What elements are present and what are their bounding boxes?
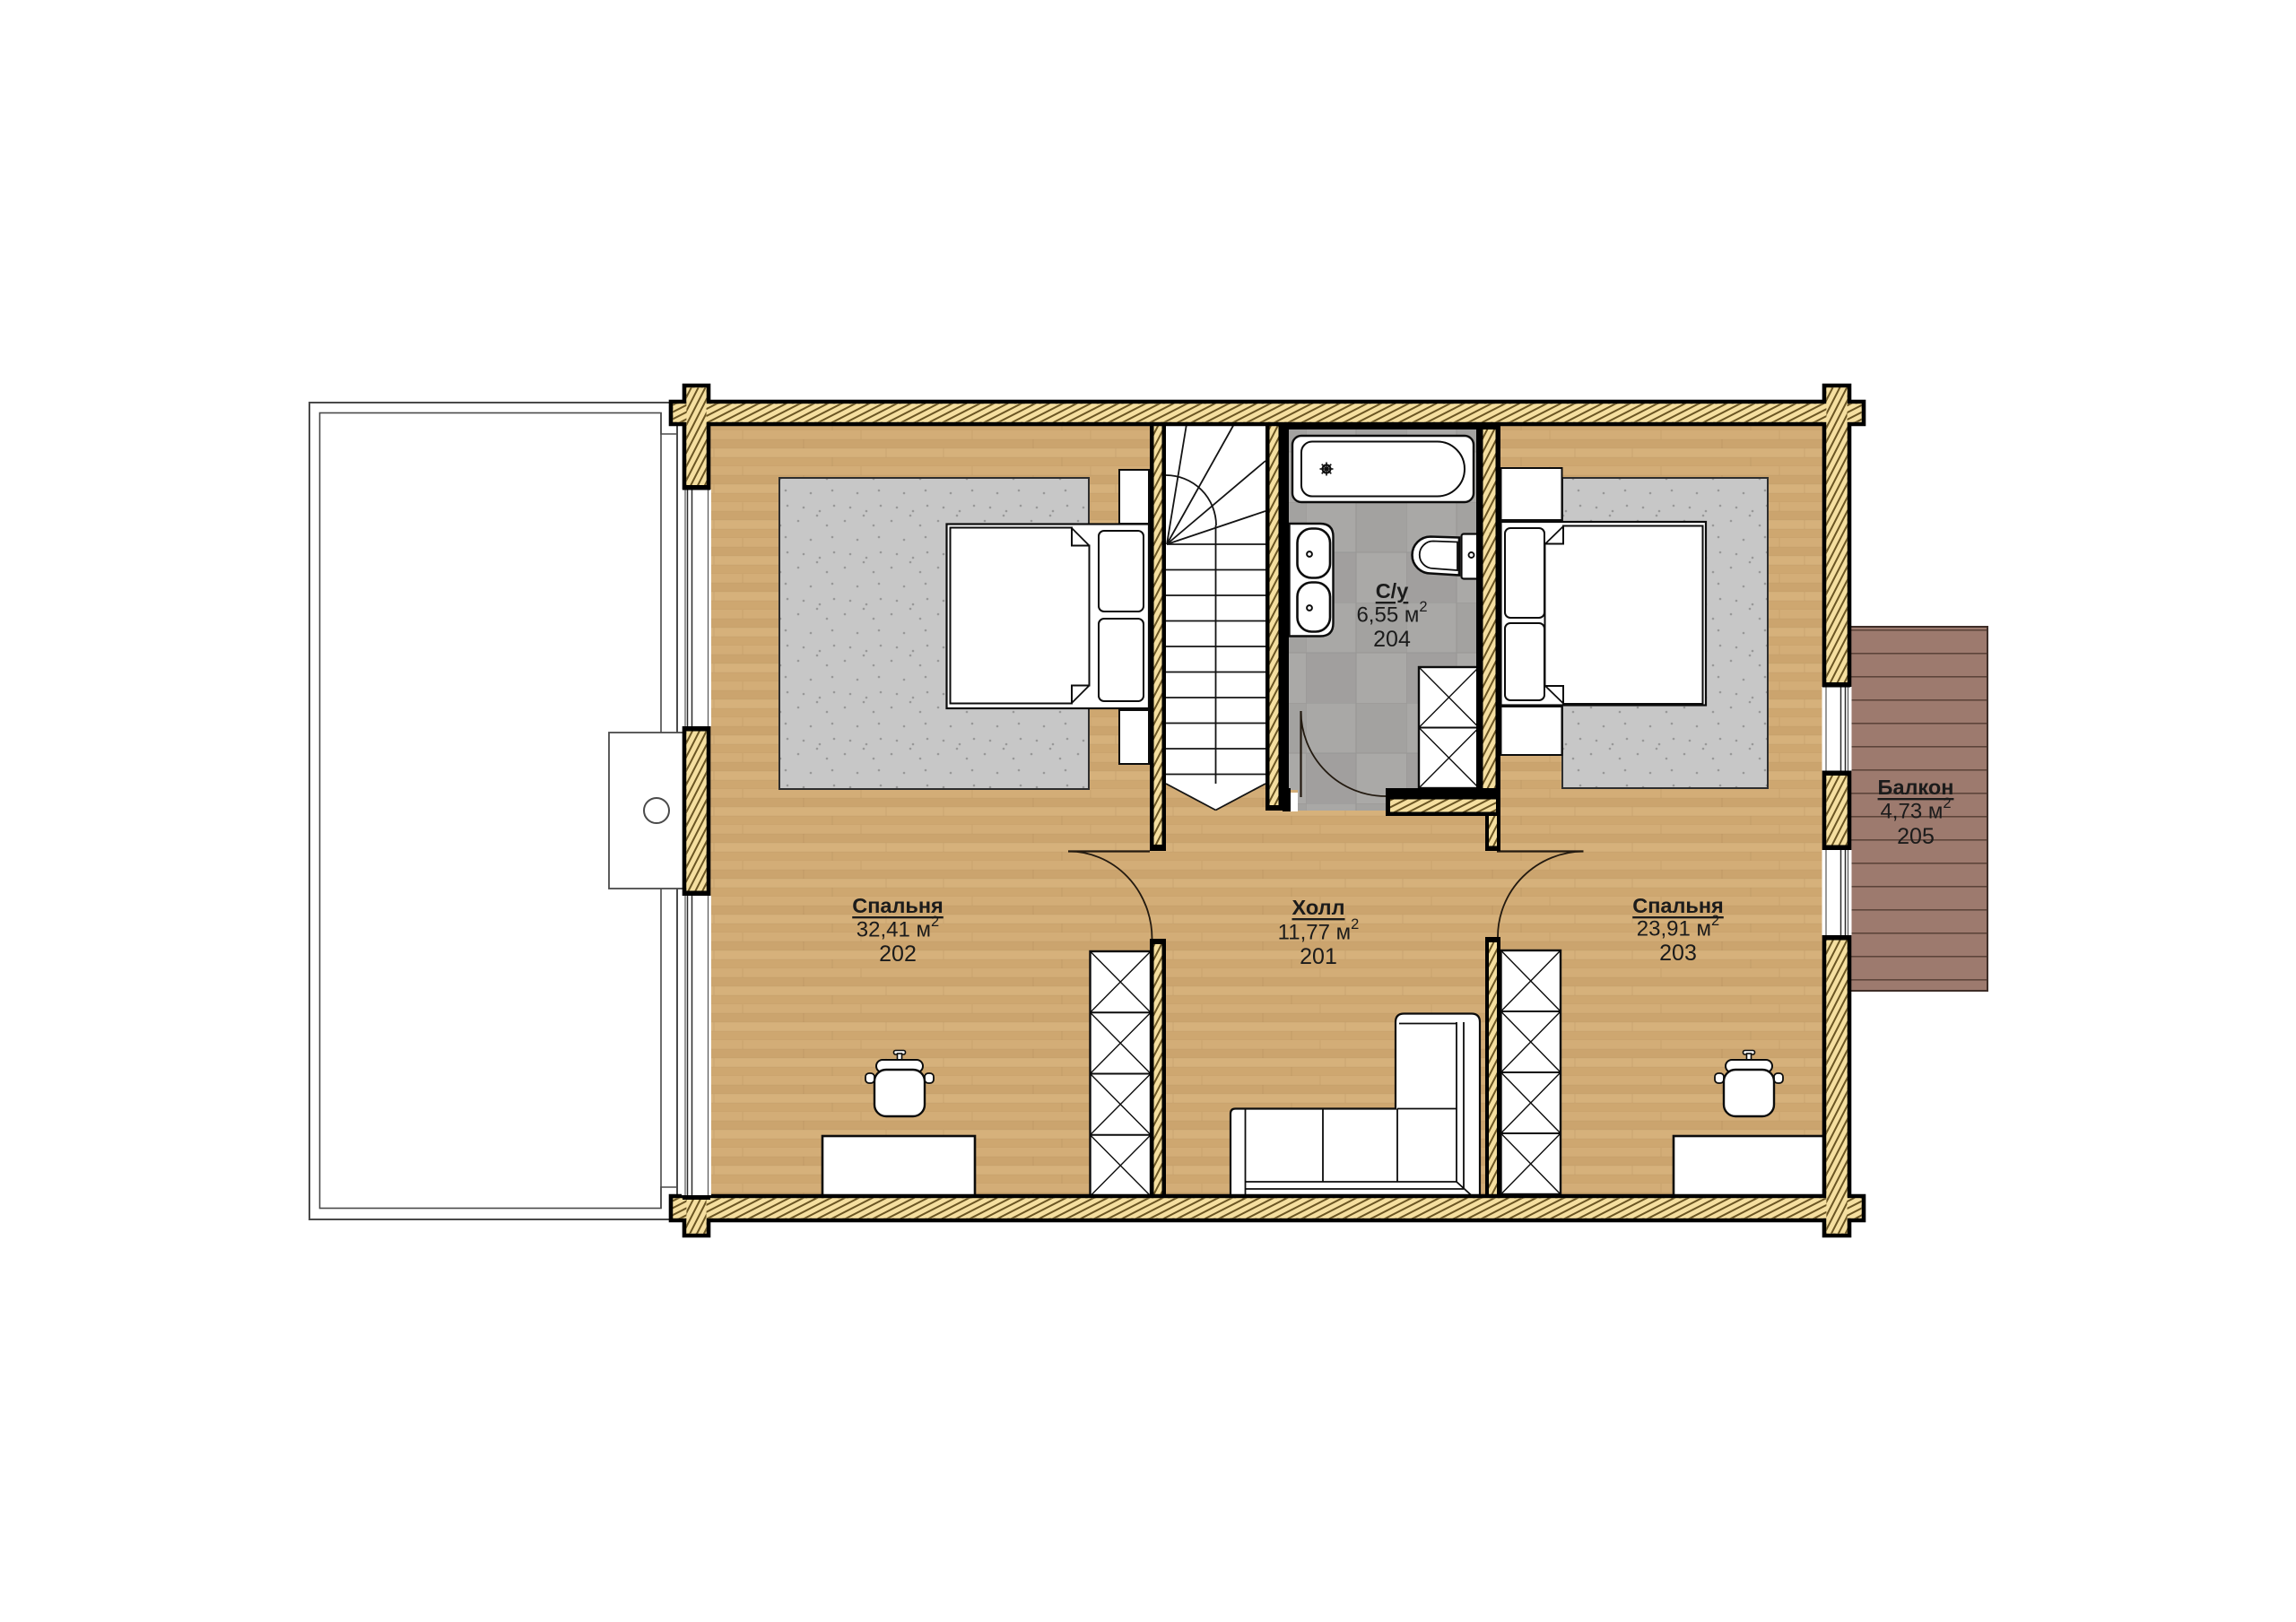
svg-text:201: 201 <box>1300 944 1337 969</box>
svg-text:4,73 м2: 4,73 м2 <box>1880 795 1951 824</box>
svg-text:Холл: Холл <box>1292 896 1345 919</box>
svg-text:6,55 м2: 6,55 м2 <box>1356 599 1427 628</box>
svg-text:11,77 м2: 11,77 м2 <box>1278 916 1360 945</box>
svg-text:204: 204 <box>1373 627 1411 652</box>
svg-text:Спальня: Спальня <box>1632 894 1724 917</box>
svg-text:С/у: С/у <box>1376 579 1409 603</box>
svg-text:32,41 м2: 32,41 м2 <box>857 914 939 942</box>
svg-text:205: 205 <box>1897 824 1935 849</box>
svg-text:Спальня: Спальня <box>852 894 944 917</box>
svg-text:203: 203 <box>1659 941 1697 966</box>
svg-text:202: 202 <box>879 941 917 967</box>
svg-text:23,91 м2: 23,91 м2 <box>1637 913 1719 941</box>
